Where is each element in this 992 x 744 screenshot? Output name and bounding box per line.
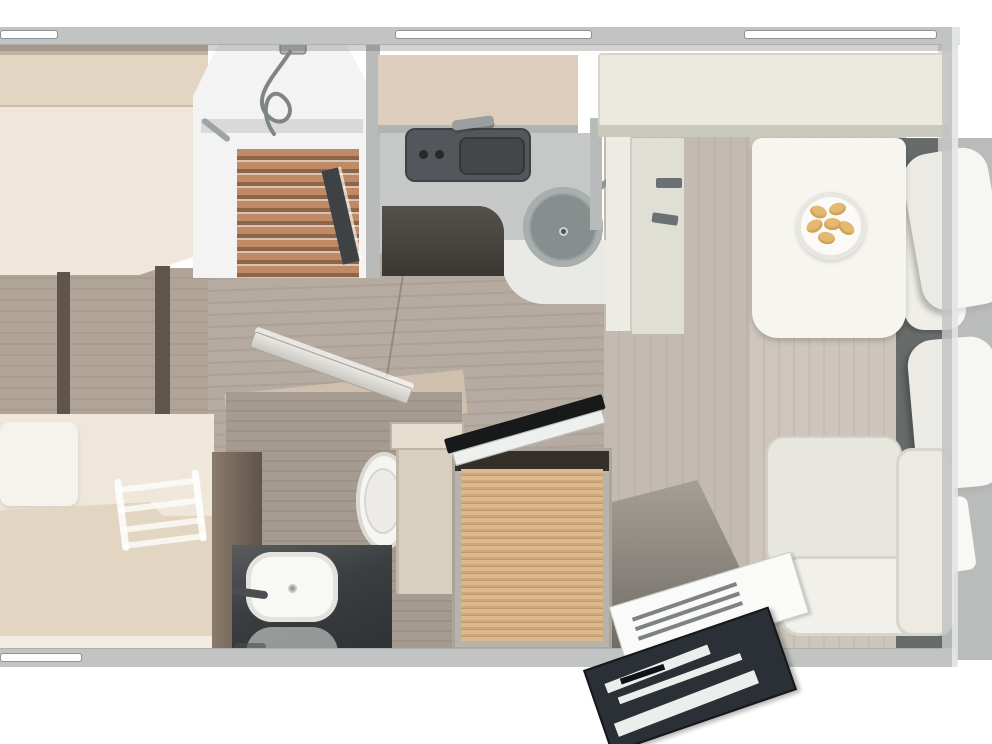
hob-grate xyxy=(459,137,525,175)
rear-lounge-seat xyxy=(766,436,902,568)
hob xyxy=(405,128,531,182)
hob-knob xyxy=(419,150,428,159)
bed-step-partition xyxy=(155,266,170,414)
bottom-wall xyxy=(0,648,956,667)
basin-drain xyxy=(288,584,297,593)
wardrobe xyxy=(452,448,612,650)
croissant xyxy=(808,203,828,220)
seatbelt-bracket xyxy=(656,178,682,188)
plate xyxy=(796,192,866,260)
window xyxy=(0,653,82,662)
motorhome-floorplan xyxy=(0,0,992,744)
bed-step-partition xyxy=(57,272,70,414)
dinette-bench-seat xyxy=(632,138,684,334)
dinette-bench-backrest xyxy=(606,133,632,331)
top-wall xyxy=(0,27,960,45)
washbasin-counter xyxy=(232,545,392,652)
wardrobe-wood-front xyxy=(461,469,603,641)
drop-down-bed xyxy=(598,53,950,127)
window xyxy=(395,30,592,39)
bunk-ladder xyxy=(108,468,216,552)
pillow xyxy=(0,422,78,506)
croissant xyxy=(828,201,848,217)
hob-knob xyxy=(435,150,444,159)
drop-down-bed-rim xyxy=(598,125,950,137)
window xyxy=(0,30,58,39)
shower-hose-icon xyxy=(228,40,358,150)
kitchen-lower-cabinet xyxy=(382,206,504,276)
croissant xyxy=(817,231,836,246)
wall-shadow xyxy=(0,45,958,51)
washbasin xyxy=(246,552,338,622)
sink-drain xyxy=(559,227,568,236)
window xyxy=(744,30,937,39)
front-bed xyxy=(0,45,208,275)
right-edge-fade-overlay xyxy=(952,0,992,744)
